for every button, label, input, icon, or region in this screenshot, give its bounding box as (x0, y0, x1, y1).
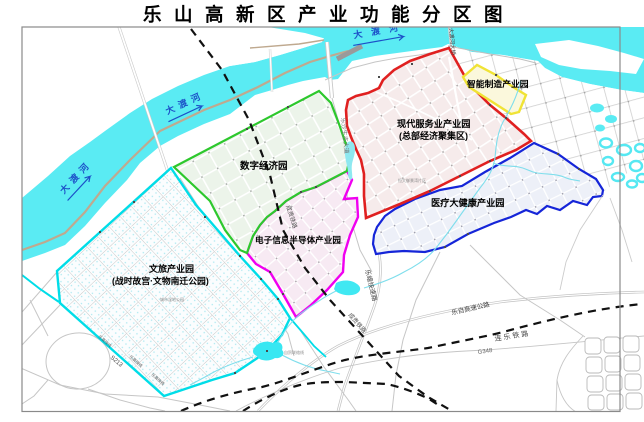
svg-text:(总部经济聚集区): (总部经济聚集区) (399, 130, 468, 141)
svg-text:恒大御景湾片区: 恒大御景湾片区 (398, 177, 426, 183)
svg-text:现代服务业产业园: 现代服务业产业园 (397, 118, 471, 129)
svg-text:城市湿地公园: 城市湿地公园 (160, 296, 184, 302)
svg-text:数字经济园: 数字经济园 (239, 160, 288, 172)
svg-text:自贸联络线: 自贸联络线 (284, 349, 304, 355)
svg-text:医疗大健康产业园: 医疗大健康产业园 (431, 197, 505, 208)
svg-text:乐山高新区产业功能分区图: 乐山高新区产业功能分区图 (143, 4, 515, 25)
svg-text:文旅产业园: 文旅产业园 (148, 263, 194, 274)
svg-text:智能制造产业园: 智能制造产业园 (467, 78, 529, 89)
svg-text:电子信息半导体产业园: 电子信息半导体产业园 (255, 234, 341, 245)
svg-text:(战时故宫·文物南迁公园): (战时故宫·文物南迁公园) (112, 275, 209, 286)
